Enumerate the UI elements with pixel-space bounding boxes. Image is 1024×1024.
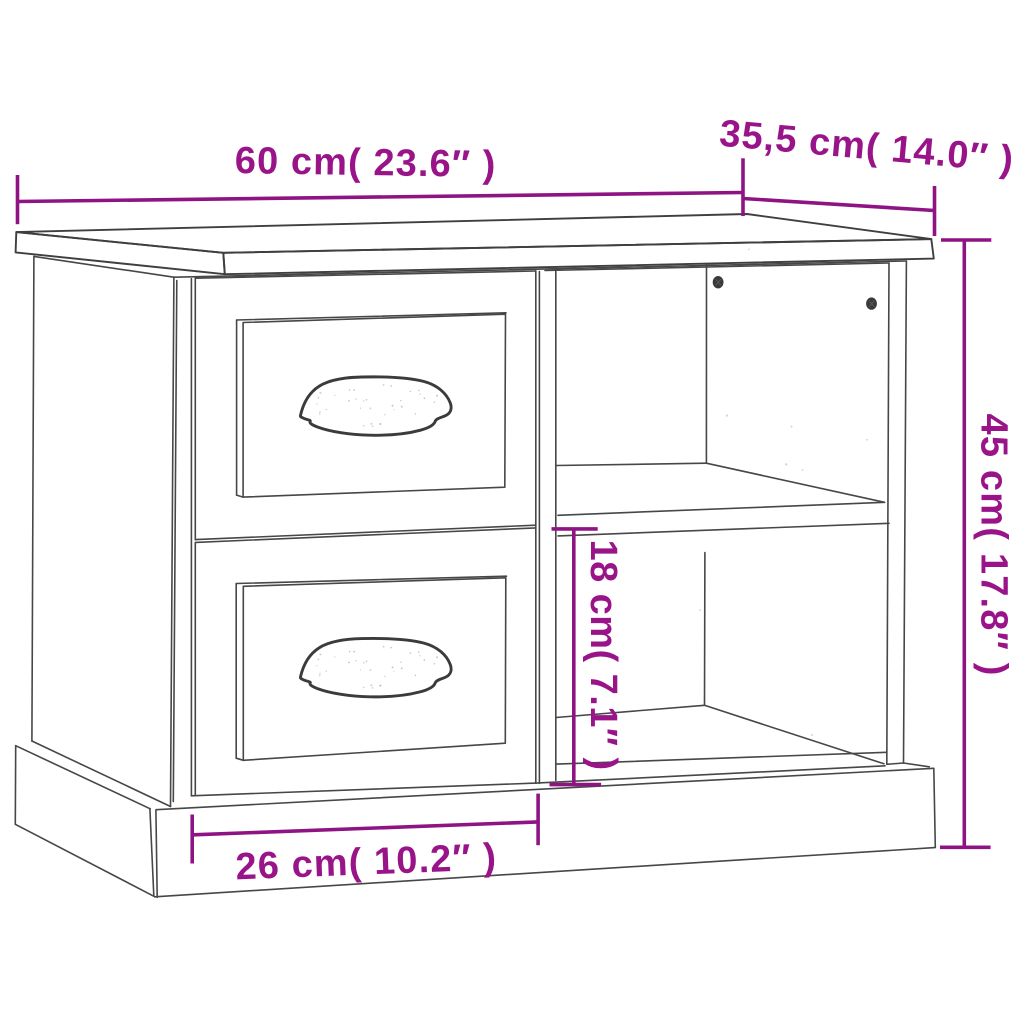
svg-text:60 cm( 23.6″ ): 60 cm( 23.6″ ) bbox=[234, 140, 496, 186]
svg-text:18 cm( 7.1″ ): 18 cm( 7.1″ ) bbox=[582, 540, 624, 771]
svg-text:45 cm( 17.8″ ): 45 cm( 17.8″ ) bbox=[973, 414, 1015, 677]
